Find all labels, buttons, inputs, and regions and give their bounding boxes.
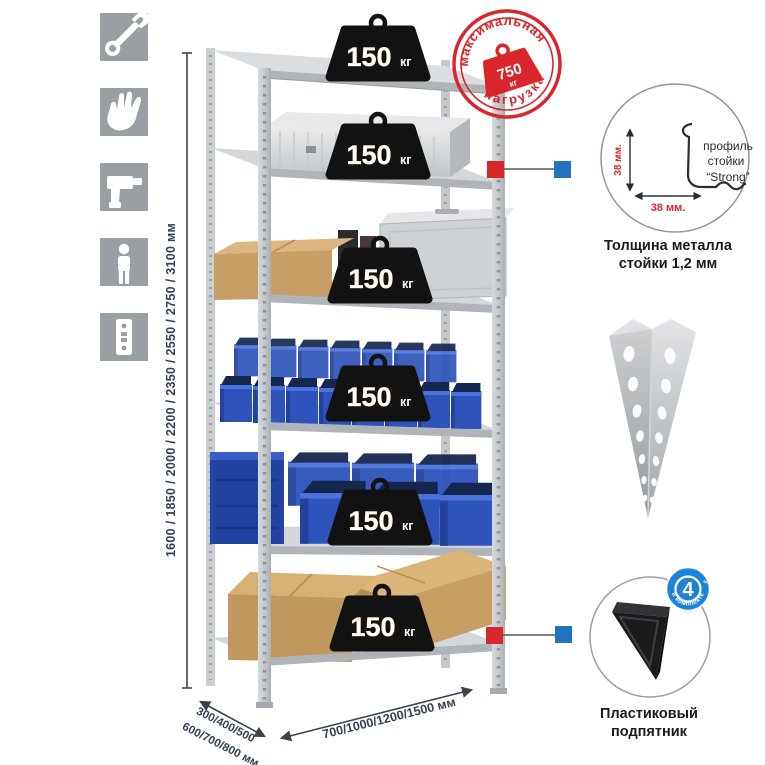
rack-front-left-post xyxy=(256,68,273,708)
quantity-badge: 4 штуки в комплекте xyxy=(667,568,718,611)
depth-dimension: 300/400/500 600/700/800 мм xyxy=(180,702,264,765)
profile-caption-1: Толщина металла xyxy=(604,238,733,254)
shelving-rack-illustration: 150 кг xyxy=(0,0,765,765)
gloves-icon xyxy=(100,88,148,136)
person-icon xyxy=(100,238,148,286)
rack-profile-icon xyxy=(100,313,148,361)
large-side-bin xyxy=(210,452,284,544)
perforated-angle-post-image xyxy=(609,319,696,518)
width-dimension-label: 700/1000/1200/1500 мм xyxy=(321,695,457,742)
badge-number: 4 xyxy=(682,579,694,601)
height-dimension-label: 1600 / 1850 / 2000 / 2200 / 2350 / 2550 … xyxy=(164,223,178,557)
foot-callout-marker xyxy=(486,626,572,644)
blue-marker-bottom xyxy=(555,626,572,643)
red-marker-bottom xyxy=(486,627,503,644)
profile-dim-vertical: 38 мм. xyxy=(613,144,624,176)
width-dimension: 700/1000/1200/1500 мм xyxy=(282,690,471,741)
profile-label-3: “Strong” xyxy=(706,170,749,184)
profile-caption-2: стойки 1,2 мм xyxy=(619,256,718,272)
red-marker-top xyxy=(487,161,504,178)
foot-caption-1: Пластиковый xyxy=(600,706,698,722)
blue-marker-top xyxy=(554,161,571,178)
feature-icons-column xyxy=(100,9,152,361)
profile-label-2: стойки xyxy=(708,154,745,168)
drill-icon xyxy=(100,163,148,211)
profile-callout-marker xyxy=(487,161,571,178)
profile-detail-circle: профиль стойки “Strong” 38 мм. 38 мм. xyxy=(601,84,753,232)
plastic-foot-circle: 4 штуки в комплекте xyxy=(590,568,718,698)
max-load-stamp: максимальная нагрузка 750 кг xyxy=(440,0,574,131)
profile-dim-horizontal: 38 мм. xyxy=(651,202,686,214)
profile-label-1: профиль xyxy=(703,139,753,153)
height-dimension: 1600 / 1850 / 2000 / 2200 / 2350 / 2550 … xyxy=(164,53,192,688)
foot-caption-2: подпятник xyxy=(611,724,688,740)
wrench-icon xyxy=(100,9,152,61)
